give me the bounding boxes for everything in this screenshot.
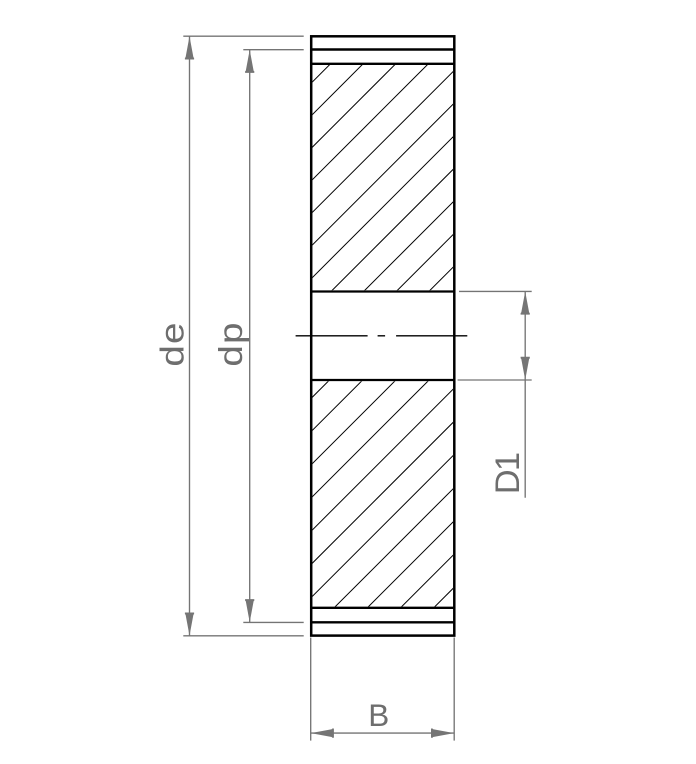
svg-text:B: B (368, 697, 389, 733)
svg-text:D1: D1 (489, 453, 527, 494)
svg-text:dp: dp (212, 321, 250, 366)
svg-text:de: de (153, 321, 191, 366)
